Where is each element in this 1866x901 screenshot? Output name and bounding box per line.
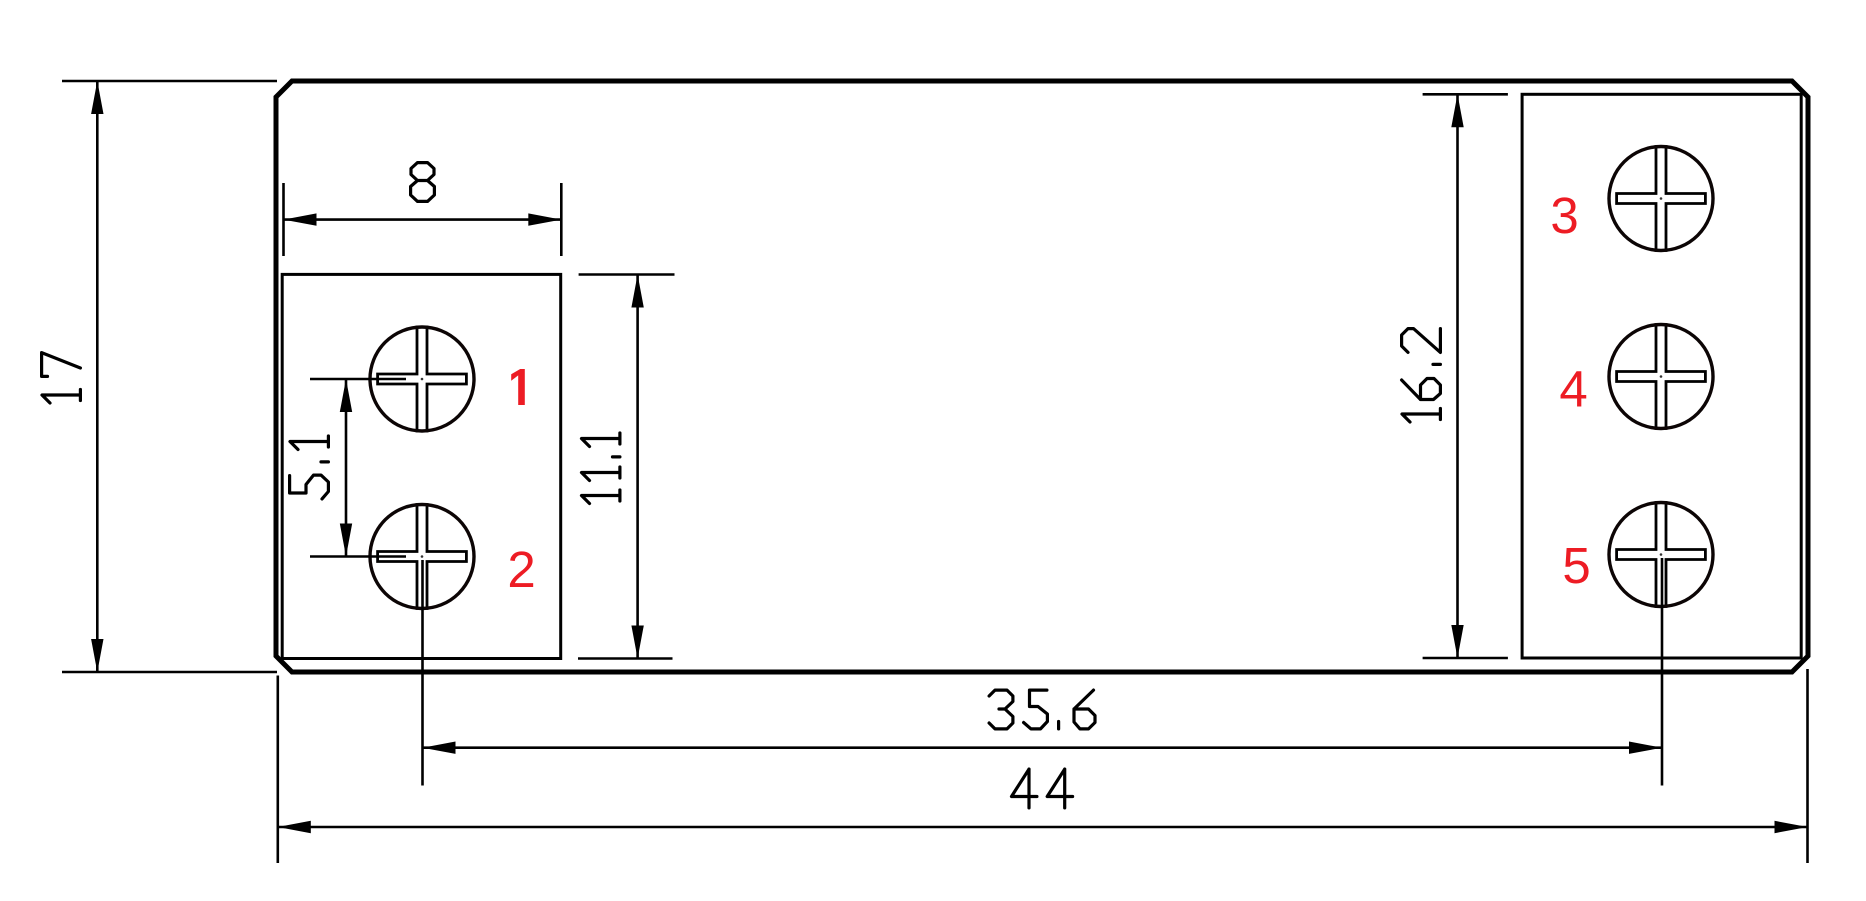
svg-text:4: 4 <box>1559 361 1587 418</box>
svg-text:2: 2 <box>507 541 535 598</box>
svg-text:3: 3 <box>1550 187 1578 244</box>
svg-text:5: 5 <box>1562 537 1590 594</box>
